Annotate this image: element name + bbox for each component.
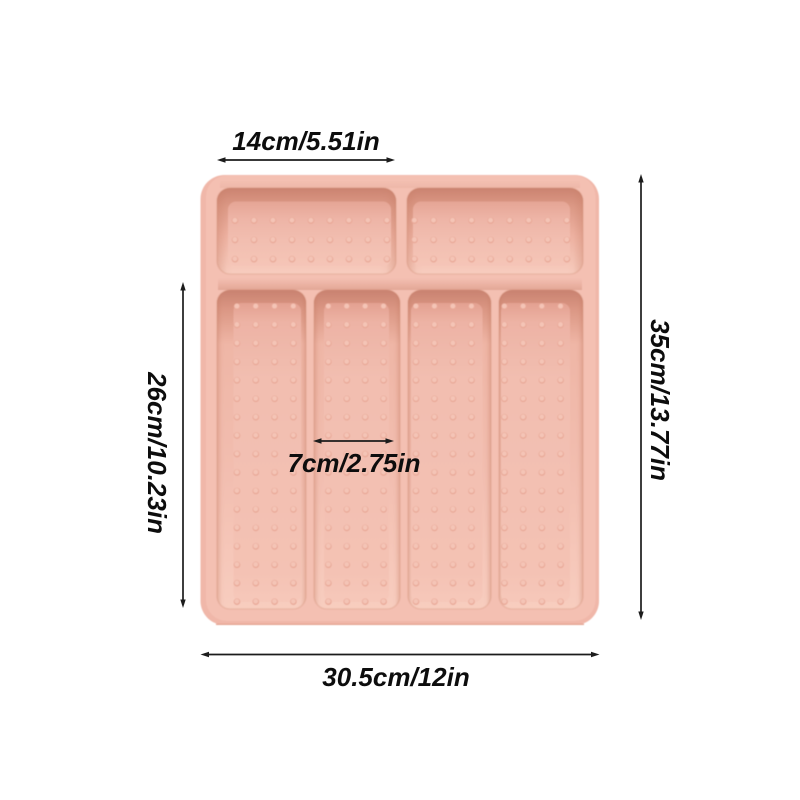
svg-text:35cm/13.77in: 35cm/13.77in: [645, 319, 675, 481]
svg-text:7cm/2.75in: 7cm/2.75in: [288, 448, 421, 478]
svg-text:26cm/10.23in: 26cm/10.23in: [142, 371, 172, 534]
svg-text:30.5cm/12in: 30.5cm/12in: [322, 662, 469, 692]
svg-text:14cm/5.51in: 14cm/5.51in: [232, 126, 379, 156]
